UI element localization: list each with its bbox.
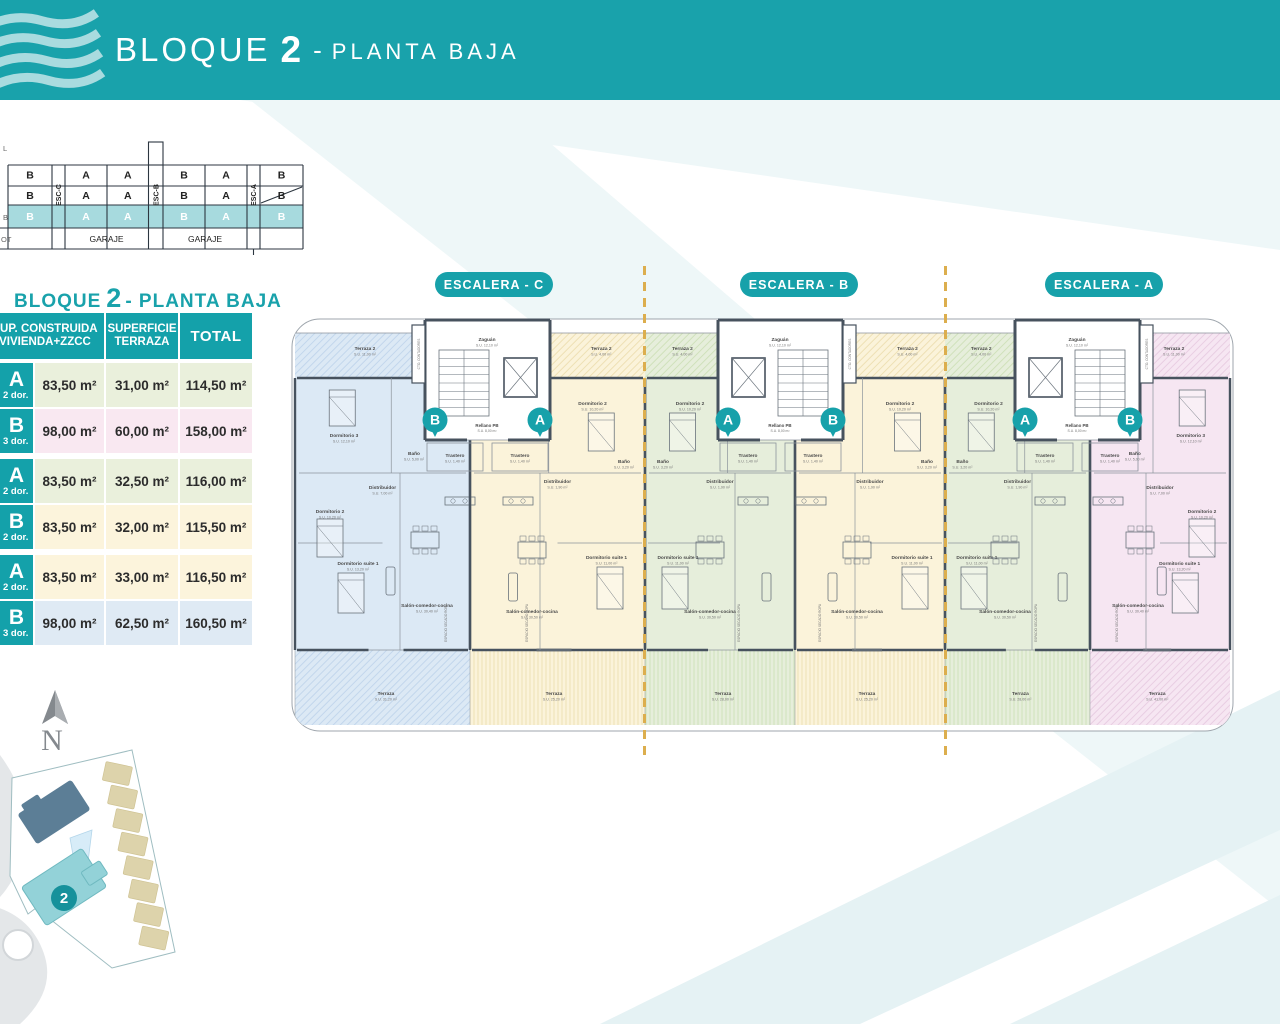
room-label: Dormitorio 3: [330, 433, 359, 439]
room-label: Terraza 2: [672, 346, 693, 352]
room-area: S.U. 10,20 m²: [319, 516, 342, 520]
room-area: S.U. 13,20 m²: [1169, 568, 1192, 572]
cell-built: 83,50 m²: [35, 505, 104, 549]
room-label: Terraza: [1149, 691, 1166, 697]
room-area: S.U. 1,90 m²: [860, 486, 881, 490]
room-area: S.U. 30,40 m²: [416, 610, 439, 614]
zaguan-label: Zaguán: [771, 337, 788, 343]
room-area: S.U. 4,00 m²: [897, 353, 918, 357]
room-area: S.U. 10,20 m²: [1191, 516, 1214, 520]
brand-logo-waves-icon: [0, 0, 110, 100]
room-label: Trastero: [446, 453, 465, 459]
title-floor-label: PLANTA BAJA: [332, 39, 520, 65]
room-label: Distribuidor: [856, 479, 883, 485]
room-area: S.U. 3,20 m²: [952, 466, 973, 470]
room-label: Salón-comedor-cocina: [1112, 603, 1164, 609]
section-unit-letter: B: [278, 211, 286, 223]
section-floor-label: B: [3, 213, 8, 222]
secado-label: ESPACIO SECADO ROPA: [737, 603, 741, 642]
section-unit-letter: B: [26, 211, 34, 223]
legend-title-block: BLOQUE: [14, 291, 101, 313]
room-label: Dormitorio 2: [676, 401, 705, 407]
room-area: S.U. 30,50 m²: [994, 616, 1017, 620]
section-unit-letter: A: [124, 170, 132, 182]
room-label: Dormitorio suite 1: [1159, 561, 1200, 567]
room-label: Distribuidor: [544, 479, 571, 485]
room-label: Terraza 2: [971, 346, 992, 352]
section-unit-letter: A: [222, 211, 230, 223]
room-area: S.U. 12,10 m²: [1180, 440, 1203, 444]
room-area: S.U. 7,00 m²: [1150, 492, 1171, 496]
room-area: S.U. 10,20 m²: [977, 408, 1000, 412]
section-unit-letter: B: [180, 190, 188, 202]
site-road: [0, 902, 47, 1024]
table-row-b-5: B3 dor.98,00 m²62,50 m²160,50 m²: [0, 601, 250, 645]
section-unit-letter: A: [222, 190, 230, 202]
room-label: Dormitorio suite 1: [891, 555, 932, 561]
table-header-terrace: SUPERFICIETERRAZA: [106, 313, 178, 359]
room-area: S.U. 4,00 m²: [971, 353, 992, 357]
floor-plan: Terraza 2S.U. 11,00 m²Dormitorio 3S.U. 1…: [285, 305, 1235, 765]
room-label: Dormitorio suite 1: [657, 555, 698, 561]
room-label: Dormitorio 2: [974, 401, 1003, 407]
room-area: S.U. 1,40 m²: [803, 460, 824, 464]
cell-built: 83,50 m²: [35, 363, 104, 407]
room-label: Dormitorio suite 1: [586, 555, 627, 561]
room-area: S.U. 11,00 m²: [966, 562, 989, 566]
section-unit-letter: A: [222, 170, 230, 182]
room-label: Dormitorio 3: [1177, 433, 1206, 439]
room-area: S.U. 3,20 m²: [653, 466, 674, 470]
room-area: S.U. 28,00 m²: [712, 698, 735, 702]
room-area: S.U. 10,20 m²: [889, 408, 912, 412]
room-area: S.U. 5,00 m²: [404, 458, 425, 462]
secado-label: ESPACIO SECADO ROPA: [525, 603, 529, 642]
unit-type-badge: B2 dor.: [0, 505, 33, 549]
room-area: S.U. 5,00 m²: [1125, 458, 1146, 462]
escalera-split-line: [944, 266, 947, 762]
section-floor-label: L: [3, 144, 7, 153]
room-area: S.U. 1,40 m²: [738, 460, 759, 464]
escalera-split-line: [643, 266, 646, 762]
room-label: Terraza 2: [1164, 346, 1185, 352]
room-label: Dormitorio 2: [316, 509, 345, 515]
room-label: Terraza: [378, 691, 395, 697]
cell-terrace: 60,00 m²: [106, 409, 178, 453]
cell-built: 83,50 m²: [35, 459, 104, 503]
zaguan-area: S.U. 12,10 m²: [476, 344, 499, 348]
room-area: S.U. 3,20 m²: [917, 466, 938, 470]
cell-total: 116,00 m²: [180, 459, 252, 503]
room-label: Baño: [408, 451, 420, 457]
zaguan-label: Zaguán: [1068, 337, 1085, 343]
room-label: Terraza 2: [355, 346, 376, 352]
table-row-a-2: A2 dor.83,50 m²32,50 m²116,00 m²: [0, 459, 250, 503]
unit-badge-letter: A: [535, 412, 545, 428]
brochure-page: BLOQUE 2 - PLANTA BAJA BAABABBAABABBAABA…: [0, 0, 1280, 1024]
cell-terrace: 33,00 m²: [106, 555, 178, 599]
room-label: Trastero: [511, 453, 530, 459]
room-area: S.U. 1,40 m²: [510, 460, 531, 464]
table-row-b-1: B3 dor.98,00 m²60,00 m²158,00 m²: [0, 409, 250, 453]
room-label: Terraza: [859, 691, 876, 697]
rellano-area: S.U. 8,00 m²: [770, 429, 790, 433]
secado-label: ESPACIO SECADO ROPA: [818, 603, 822, 642]
room-label: Dormitorio suite 1: [337, 561, 378, 567]
title-block-label: BLOQUE: [115, 31, 271, 69]
site-block-2-number: 2: [60, 890, 68, 907]
room-area: S.U. 4,00 m²: [672, 353, 693, 357]
room-area: S.U. 13,20 m²: [347, 568, 370, 572]
site-plan: N2: [0, 672, 220, 1024]
room-label: Terraza: [1012, 691, 1029, 697]
cell-total: 115,50 m²: [180, 505, 252, 549]
unit-badge-letter: B: [430, 412, 440, 428]
legend-title-number: 2: [106, 283, 121, 314]
room-area: S.U. 1,40 m²: [1035, 460, 1056, 464]
table-header-total: TOTAL: [180, 313, 252, 359]
room-area: S.U. 11,00 m²: [596, 562, 619, 566]
unit-type-badge: B3 dor.: [0, 409, 33, 453]
room-area: S.U. 41,00 m²: [1146, 698, 1169, 702]
room-area: S.U. 1,90 m²: [710, 486, 731, 490]
room-label: Distribuidor: [369, 485, 396, 491]
table-header-built: SUP. CONSTRUIDAVIVIENDA+ZZCC: [0, 313, 104, 359]
rellano-label: Rellano PB: [475, 423, 498, 428]
section-esc-label: ESC-B: [153, 184, 160, 206]
section-esc-label: ESC-A: [251, 184, 258, 206]
room-label: Distribuidor: [1146, 485, 1173, 491]
utility-room-label: CTO. CONTADORES: [1145, 339, 1149, 370]
section-esc-label: ESC-C: [56, 184, 63, 206]
room-area: S.U. 28,00 m²: [1009, 698, 1032, 702]
unit-type-badge: B3 dor.: [0, 601, 33, 645]
section-unit-letter: A: [82, 190, 90, 202]
room-label: Dormitorio 2: [578, 401, 607, 407]
section-unit-letter: A: [82, 170, 90, 182]
section-floor-label: OT: [1, 235, 12, 244]
section-unit-letter: A: [124, 190, 132, 202]
title-block-number: 2: [281, 29, 302, 71]
room-area: S.U. 10,20 m²: [679, 408, 702, 412]
north-label: N: [41, 724, 63, 757]
room-area: S.U. 4,00 m²: [591, 353, 612, 357]
room-label: Distribuidor: [1004, 479, 1031, 485]
room-label: Baño: [921, 459, 933, 465]
zaguan-label: Zaguán: [478, 337, 495, 343]
unit-badge-letter: A: [723, 412, 733, 428]
unit-type-badge: A2 dor.: [0, 363, 33, 407]
cell-built: 98,00 m²: [35, 601, 104, 645]
room-label: Baño: [1129, 451, 1141, 457]
room-label: Trastero: [739, 453, 758, 459]
room-area: S.U. 1,90 m²: [547, 486, 568, 490]
zaguan-area: S.U. 12,10 m²: [1066, 344, 1089, 348]
unit-type-badge: A2 dor.: [0, 459, 33, 503]
secado-label: ESPACIO SECADO ROPA: [1034, 603, 1038, 642]
room-label: Salón-comedor-cocina: [979, 609, 1031, 615]
section-unit-letter: B: [26, 170, 34, 182]
unit-badge-letter: B: [828, 412, 838, 428]
section-garage-label: GARAJE: [89, 234, 123, 244]
room-area: S.U. 11,00 m²: [667, 562, 690, 566]
section-unit-letter: B: [278, 190, 286, 202]
room-label: Trastero: [1101, 453, 1120, 459]
utility-room-label: CTO. CONTADORES: [848, 339, 852, 370]
header-band: BLOQUE 2 - PLANTA BAJA: [0, 0, 1280, 100]
section-unit-letter: B: [180, 211, 188, 223]
rellano-area: S.U. 8,00 m²: [1067, 429, 1087, 433]
room-area: S.U. 1,40 m²: [445, 460, 466, 464]
room-area: S.U. 30,40 m²: [1127, 610, 1150, 614]
table-row-a-4: A2 dor.83,50 m²33,00 m²116,50 m²: [0, 555, 250, 599]
escalera-pill-b: ESCALERA - B: [740, 272, 858, 297]
site-block-2-badge: 2: [51, 885, 77, 911]
room-label: Terraza: [715, 691, 732, 697]
cell-terrace: 32,00 m²: [106, 505, 178, 549]
section-unit-letter: B: [26, 190, 34, 202]
room-label: Trastero: [804, 453, 823, 459]
page-title: BLOQUE 2 - PLANTA BAJA: [115, 0, 520, 100]
zaguan-area: S.U. 12,10 m²: [769, 344, 792, 348]
cell-total: 116,50 m²: [180, 555, 252, 599]
room-area: S.U. 25,20 m²: [543, 698, 566, 702]
room-area: S.U. 10,20 m²: [581, 408, 604, 412]
cell-built: 83,50 m²: [35, 555, 104, 599]
room-label: Dormitorio 2: [886, 401, 915, 407]
legend-title-floor: - PLANTA BAJA: [125, 291, 282, 313]
table-row-b-3: B2 dor.83,50 m²32,00 m²115,50 m²: [0, 505, 250, 549]
room-label: Salón-comedor-cocina: [506, 609, 558, 615]
north-arrow-icon: N: [41, 690, 68, 757]
room-area: S.U. 30,50 m²: [846, 616, 869, 620]
unit-type-badge: A2 dor.: [0, 555, 33, 599]
room-area: S.U. 31,20 m²: [375, 698, 398, 702]
room-label: Terraza 2: [591, 346, 612, 352]
room-label: Salón-comedor-cocina: [831, 609, 883, 615]
site-roundabout: [3, 930, 33, 960]
room-area: S.U. 12,10 m²: [333, 440, 356, 444]
cell-total: 158,00 m²: [180, 409, 252, 453]
rellano-label: Rellano PB: [768, 423, 791, 428]
room-area: S.U. 30,50 m²: [699, 616, 722, 620]
section-garage-label: GARAJE: [188, 234, 222, 244]
room-label: Distribuidor: [706, 479, 733, 485]
building-cross-section-diagram: BAABABBAABABBAABABESC-CESC-BESC-AGARAJEG…: [0, 137, 312, 257]
room-area: S.U. 1,40 m²: [1100, 460, 1121, 464]
room-area: S.U. 7,00 m²: [372, 492, 393, 496]
room-label: Trastero: [1036, 453, 1055, 459]
utility-room-label: CTO. CONTADORES: [417, 339, 421, 370]
cell-terrace: 32,50 m²: [106, 459, 178, 503]
room-area: S.U. 25,20 m²: [856, 698, 879, 702]
legend-title: BLOQUE 2 - PLANTA BAJA: [14, 283, 282, 314]
room-label: Terraza 2: [897, 346, 918, 352]
title-separator: -: [313, 35, 322, 66]
section-unit-letter: A: [82, 211, 90, 223]
section-unit-letter: B: [180, 170, 188, 182]
cell-total: 160,50 m²: [180, 601, 252, 645]
cell-terrace: 31,00 m²: [106, 363, 178, 407]
cell-total: 114,50 m²: [180, 363, 252, 407]
room-area: S.U. 11,00 m²: [1163, 353, 1186, 357]
unit-badge-letter: B: [1125, 412, 1135, 428]
section-unit-letter: B: [278, 170, 286, 182]
rellano-label: Rellano PB: [1065, 423, 1088, 428]
room-label: Baño: [956, 459, 968, 465]
cell-built: 98,00 m²: [35, 409, 104, 453]
room-label: Baño: [618, 459, 630, 465]
escalera-pill-a: ESCALERA - A: [1045, 272, 1163, 297]
room-label: Terraza: [546, 691, 563, 697]
room-label: Baño: [657, 459, 669, 465]
escalera-pill-c: ESCALERA - C: [435, 272, 553, 297]
cell-terrace: 62,50 m²: [106, 601, 178, 645]
room-label: Salón-comedor-cocina: [684, 609, 736, 615]
room-area: S.U. 11,00 m²: [354, 353, 377, 357]
section-unit-letter: A: [124, 211, 132, 223]
rellano-area: S.U. 8,00 m²: [477, 429, 497, 433]
room-label: Dormitorio 2: [1188, 509, 1217, 515]
table-row-a-0: A2 dor.83,50 m²31,00 m²114,50 m²: [0, 363, 250, 407]
unit-badge-letter: A: [1020, 412, 1030, 428]
secado-label: ESPACIO SECADO ROPA: [444, 603, 448, 642]
room-area: S.U. 11,00 m²: [901, 562, 924, 566]
surface-summary-table: SUP. CONSTRUIDAVIVIENDA+ZZCC SUPERFICIET…: [0, 313, 250, 647]
secado-label: ESPACIO SECADO ROPA: [1115, 603, 1119, 642]
room-area: S.U. 3,20 m²: [614, 466, 635, 470]
room-area: S.U. 1,90 m²: [1007, 486, 1028, 490]
